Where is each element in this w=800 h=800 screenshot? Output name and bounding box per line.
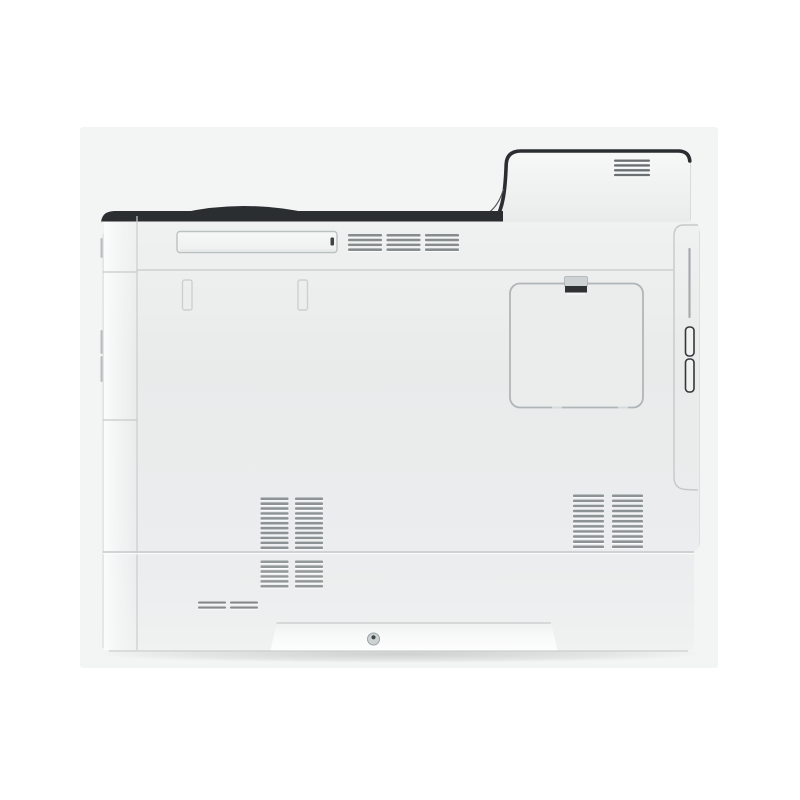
recessed-grip-slot bbox=[177, 232, 337, 253]
raised-top-cover bbox=[495, 150, 691, 223]
latch-highlight bbox=[567, 293, 585, 295]
front-edge-highlight bbox=[104, 222, 137, 650]
rear-latch-button-upper bbox=[686, 327, 695, 356]
toner-access-panel bbox=[510, 284, 643, 408]
panel-hinge-nub-right bbox=[618, 407, 628, 409]
access-panel-latch bbox=[565, 277, 588, 287]
rear-latch-button-lower bbox=[686, 359, 695, 392]
panel-hinge-nub-left bbox=[552, 407, 562, 409]
product-photo[interactable] bbox=[0, 0, 800, 800]
printer-illustration bbox=[0, 0, 800, 800]
grip-slot-latch-tick bbox=[331, 238, 335, 246]
access-panel-latch-bar bbox=[565, 286, 587, 293]
recessed-carry-handle bbox=[271, 623, 558, 651]
printer-body bbox=[103, 214, 700, 651]
screw-slot bbox=[371, 635, 375, 639]
